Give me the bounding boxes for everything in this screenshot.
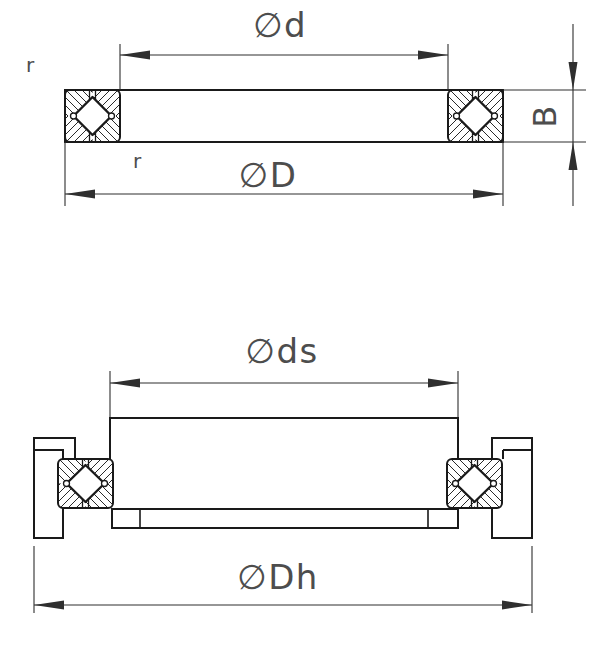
dim-label-width: B <box>526 104 564 127</box>
dim-label-chamfer-top: r <box>26 53 35 77</box>
dim-label-housing-diameter: ∅Dh <box>237 557 319 597</box>
bearing-technical-drawing: ∅d ∅D B r r ∅ds ∅Dh <box>0 0 600 660</box>
bearing-cross-section-bottom-right <box>447 459 502 508</box>
drawing-svg: ∅d ∅D B r r ∅ds ∅Dh <box>0 0 600 660</box>
shaft-flange <box>112 509 458 528</box>
dim-label-outer-diameter: ∅D <box>239 155 298 195</box>
bearing-cross-section-top-left <box>65 90 120 142</box>
dim-label-shaft-diameter: ∅ds <box>245 331 318 371</box>
bearing-cross-section-bottom-left <box>58 459 113 508</box>
bearing-cross-section-top-right <box>448 90 503 142</box>
dim-label-bore-diameter: ∅d <box>253 5 307 45</box>
dim-label-chamfer-inner: r <box>133 149 142 173</box>
